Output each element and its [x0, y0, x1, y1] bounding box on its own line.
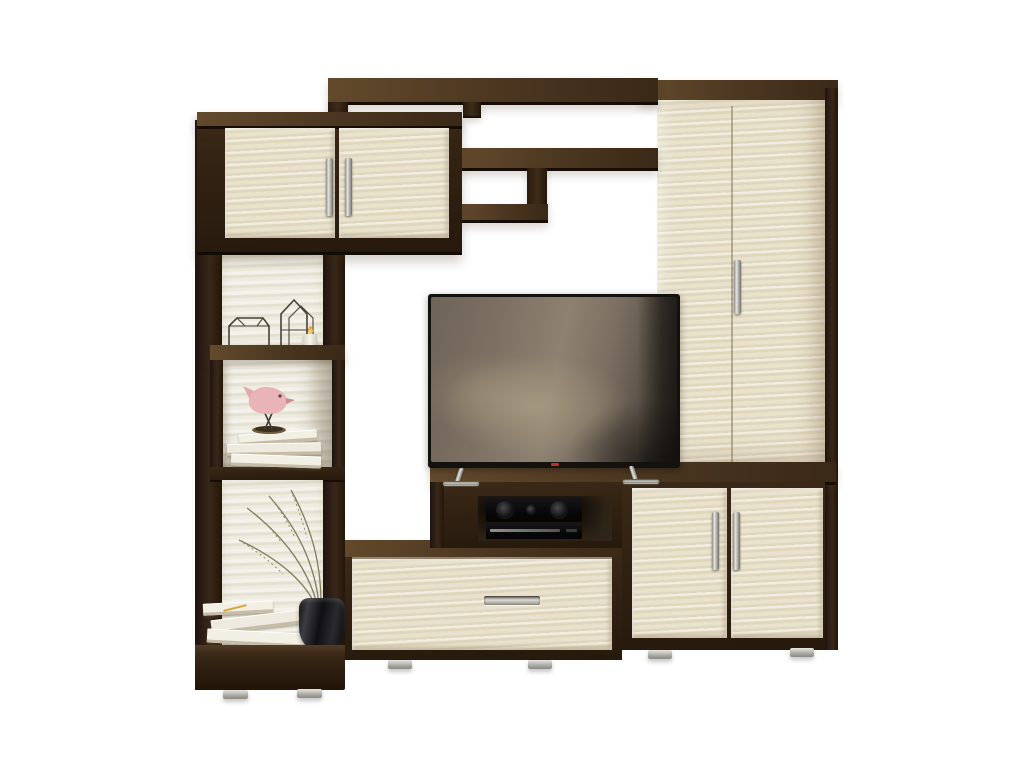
- dvd-buttons: [566, 529, 577, 532]
- drawer-front: [352, 557, 612, 650]
- dvd-player: [486, 524, 582, 539]
- right-cabinet-foot-right: [790, 648, 814, 657]
- wardrobe-door-seam: [731, 106, 733, 462]
- wardrobe-front: [657, 100, 825, 468]
- wardrobe-handle: [734, 260, 741, 314]
- drawer-foot-left: [388, 660, 412, 669]
- unit-right-side-panel: [825, 88, 838, 650]
- tv-standby-led: [551, 463, 559, 466]
- upper-cabinet-handle-right: [345, 158, 352, 216]
- bird-figurine: [239, 378, 303, 436]
- box-shelf-side-left: [210, 360, 223, 480]
- speaker-cone-left: [496, 501, 514, 519]
- upper-cabinet-door-right: [339, 128, 449, 238]
- black-vase: [299, 598, 345, 652]
- right-cabinet-door-right: [731, 488, 823, 638]
- photo-canvas: [0, 0, 1024, 768]
- speaker-cone-right: [550, 501, 568, 519]
- column-foot-right: [297, 689, 322, 698]
- column-foot-left: [223, 690, 248, 699]
- box-shelf-side-right: [332, 360, 345, 480]
- shelf-divider-2: [527, 168, 547, 206]
- upper-cabinet-top: [197, 112, 462, 129]
- shelf-divider-1: [463, 102, 481, 118]
- top-shelf-board-upper: [328, 78, 658, 105]
- dvd-front-trim: [490, 529, 560, 532]
- dry-plant: [225, 482, 343, 607]
- base-plinth: [195, 645, 345, 690]
- right-cabinet-handle-right: [733, 512, 740, 570]
- av-receiver: [486, 498, 582, 522]
- upper-cabinet-handle-left: [326, 158, 333, 216]
- media-box-left-side: [430, 482, 444, 548]
- volume-knob: [526, 505, 536, 515]
- tv-foot-right: [623, 479, 659, 483]
- candle-flame: [308, 326, 313, 334]
- right-cabinet-handle-left: [712, 512, 719, 570]
- right-cabinet-foot-left: [648, 650, 672, 659]
- drawer-handle: [484, 596, 540, 605]
- drawer-foot-right: [528, 660, 552, 669]
- top-shelf-board-middle: [460, 148, 658, 171]
- top-shelf-board-small: [460, 204, 548, 223]
- upper-cabinet-door-left: [225, 128, 335, 238]
- tv-foot-left: [443, 481, 479, 485]
- wall-unit: [195, 62, 845, 708]
- tv-screen: [431, 297, 677, 462]
